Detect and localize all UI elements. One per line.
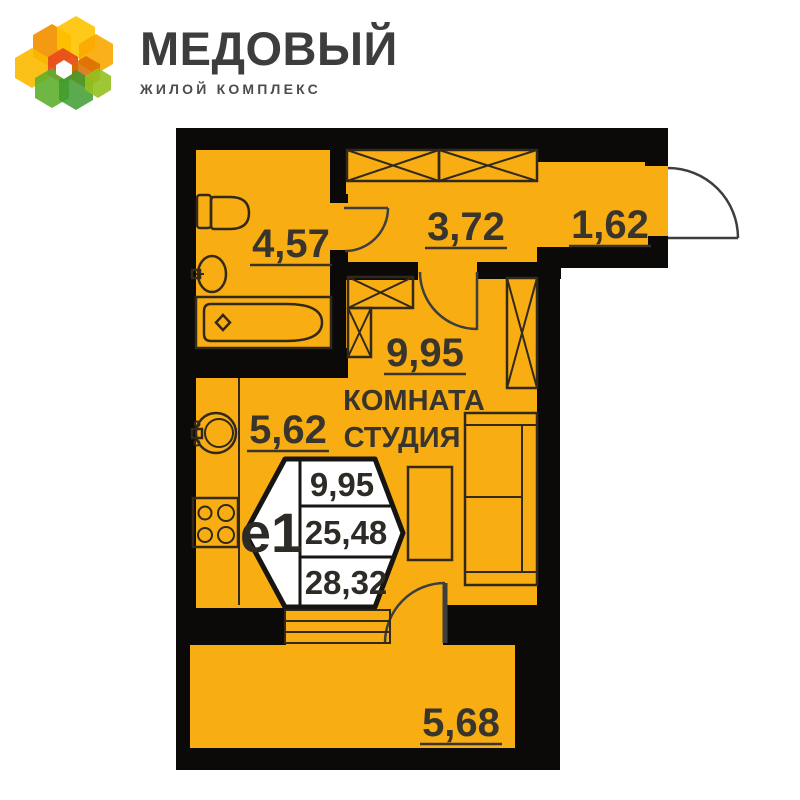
studio-name-line2: СТУДИЯ bbox=[344, 422, 461, 454]
entrance-door bbox=[668, 168, 738, 238]
studio-area-label: 9,95 bbox=[386, 331, 464, 375]
kitchen-area-label: 5,62 bbox=[249, 408, 327, 452]
bathroom-area-label: 4,57 bbox=[252, 222, 330, 266]
apartment-area-value: 25,48 bbox=[305, 514, 388, 551]
living-area-value: 9,95 bbox=[310, 466, 374, 503]
studio-name-line1: КОМНАТА bbox=[343, 385, 485, 417]
hallway-area-label: 3,72 bbox=[427, 205, 505, 249]
entry-area-label: 1,62 bbox=[571, 203, 649, 247]
unit-type-label: е1 bbox=[240, 501, 302, 564]
floor-plan: 4,57 3,72 1,62 9,95 КОМНАТА СТУДИЯ 5,62 … bbox=[0, 0, 800, 800]
floor-plan-svg: 4,57 3,72 1,62 9,95 КОМНАТА СТУДИЯ 5,62 … bbox=[0, 0, 800, 800]
balcony-area-label: 5,68 bbox=[422, 701, 500, 745]
total-area-value: 28,32 bbox=[305, 564, 388, 601]
